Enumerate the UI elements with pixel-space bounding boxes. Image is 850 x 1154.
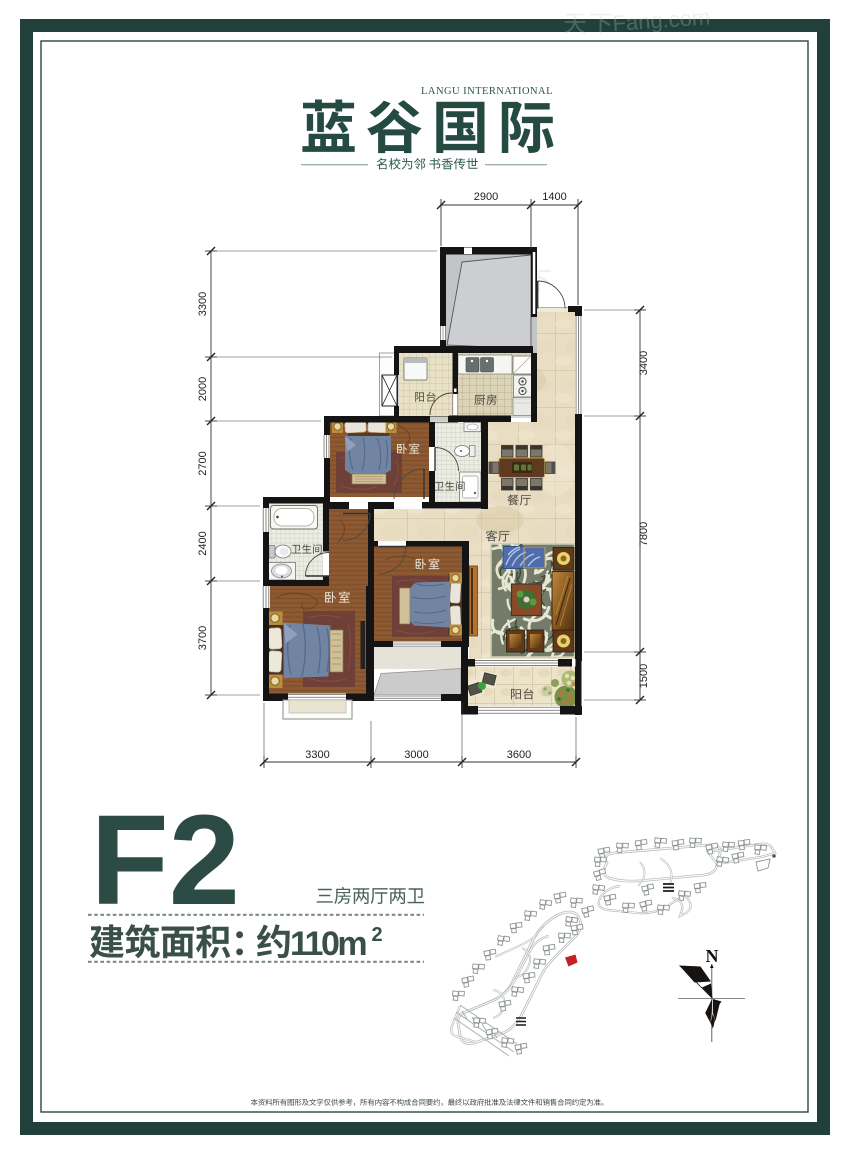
svg-text:3300: 3300 xyxy=(305,749,329,761)
svg-text:110m: 110m xyxy=(290,925,366,963)
svg-text:3700: 3700 xyxy=(197,626,209,650)
svg-text:LANGU INTERNATIONAL: LANGU INTERNATIONAL xyxy=(421,86,553,97)
svg-text:1500: 1500 xyxy=(638,664,650,688)
svg-text:3400: 3400 xyxy=(638,351,650,375)
svg-text:3000: 3000 xyxy=(404,749,428,761)
svg-text:2: 2 xyxy=(372,924,383,946)
svg-text:2400: 2400 xyxy=(197,531,209,555)
svg-text:2700: 2700 xyxy=(197,451,209,475)
svg-text:3300: 3300 xyxy=(197,292,209,316)
svg-text:F2: F2 xyxy=(91,789,240,932)
svg-text:7800: 7800 xyxy=(638,522,650,546)
svg-text:1400: 1400 xyxy=(542,191,566,203)
svg-text:2900: 2900 xyxy=(474,191,498,203)
svg-text:N: N xyxy=(706,946,719,966)
svg-text:3600: 3600 xyxy=(507,749,531,761)
svg-text:2000: 2000 xyxy=(197,377,209,401)
